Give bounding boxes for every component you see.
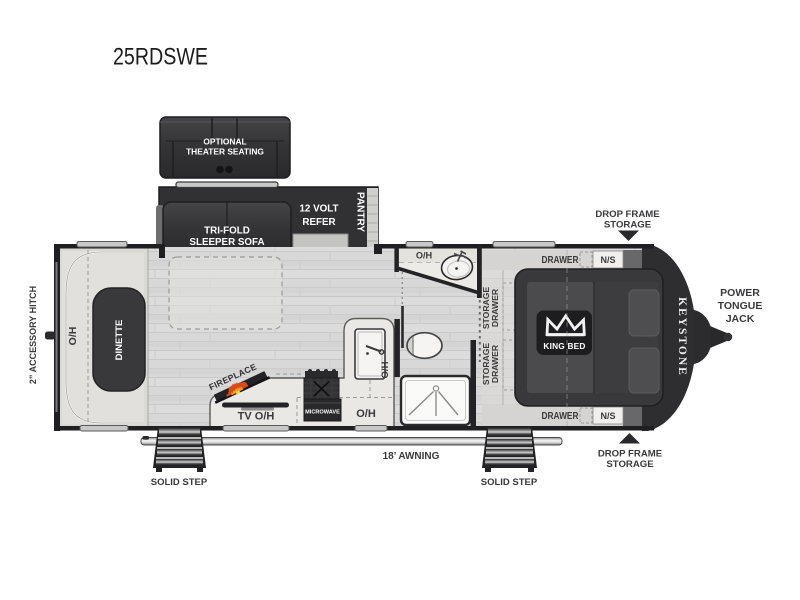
svg-text:POWER: POWER bbox=[720, 287, 760, 299]
svg-text:DROP FRAME: DROP FRAME bbox=[595, 209, 660, 220]
svg-text:O/H: O/H bbox=[380, 361, 391, 378]
svg-text:REFER: REFER bbox=[302, 217, 335, 228]
svg-text:O/H: O/H bbox=[356, 408, 376, 420]
svg-text:STORAGE: STORAGE bbox=[604, 220, 652, 231]
svg-text:DRAWER: DRAWER bbox=[490, 344, 500, 383]
svg-text:N/S: N/S bbox=[600, 411, 615, 421]
svg-text:KEYSTONE: KEYSTONE bbox=[676, 297, 688, 377]
svg-text:2” ACCESSORY HITCH: 2” ACCESSORY HITCH bbox=[28, 286, 38, 384]
svg-text:DRAWER: DRAWER bbox=[490, 288, 500, 327]
svg-text:PANTRY: PANTRY bbox=[355, 192, 366, 232]
svg-text:O/H: O/H bbox=[67, 327, 79, 346]
svg-text:TRI-FOLD: TRI-FOLD bbox=[204, 226, 250, 237]
svg-text:TV O/H: TV O/H bbox=[238, 411, 275, 423]
svg-text:THEATER SEATING: THEATER SEATING bbox=[186, 147, 264, 157]
svg-text:OPTIONAL: OPTIONAL bbox=[203, 137, 246, 147]
svg-text:DROP FRAME: DROP FRAME bbox=[598, 449, 663, 460]
svg-text:KING BED: KING BED bbox=[543, 341, 585, 351]
svg-text:18’ AWNING: 18’ AWNING bbox=[383, 451, 440, 462]
svg-text:STORAGE: STORAGE bbox=[606, 459, 654, 470]
svg-text:O/H: O/H bbox=[416, 251, 433, 261]
svg-text:N/S: N/S bbox=[600, 255, 615, 265]
svg-text:TONGUE: TONGUE bbox=[718, 300, 763, 312]
svg-text:12 VOLT: 12 VOLT bbox=[299, 204, 338, 215]
svg-text:25RDSWE: 25RDSWE bbox=[113, 44, 208, 71]
svg-text:DINETTE: DINETTE bbox=[114, 320, 125, 361]
svg-text:SOLID STEP: SOLID STEP bbox=[151, 477, 208, 488]
svg-text:DRAWER: DRAWER bbox=[542, 410, 579, 422]
svg-text:SOLID STEP: SOLID STEP bbox=[481, 477, 538, 488]
svg-text:JACK: JACK bbox=[726, 313, 755, 325]
svg-text:MICROWAVE: MICROWAVE bbox=[305, 410, 340, 416]
svg-text:SLEEPER SOFA: SLEEPER SOFA bbox=[189, 237, 264, 248]
svg-text:DRAWER: DRAWER bbox=[542, 254, 579, 266]
